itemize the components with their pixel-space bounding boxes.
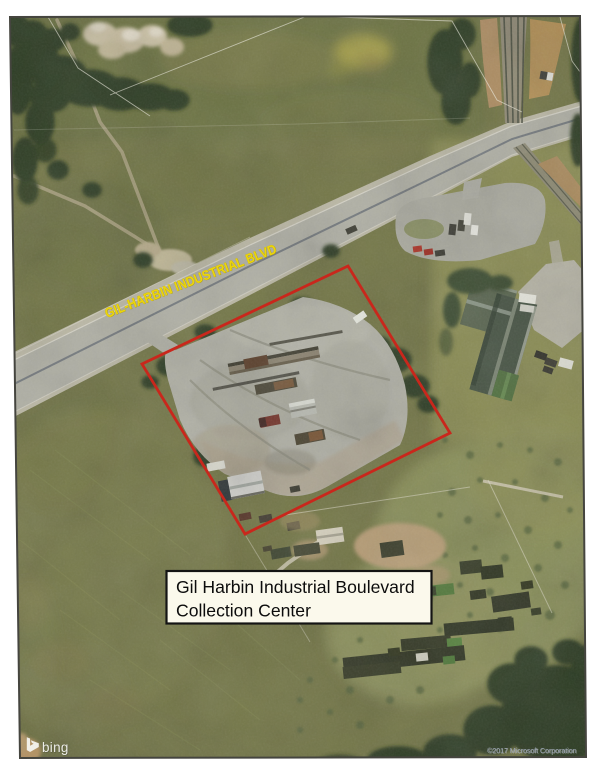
svg-text:Collection Center: Collection Center bbox=[176, 601, 311, 621]
svg-text:bing: bing bbox=[42, 740, 69, 755]
svg-text:Gil Harbin Industrial Boulevar: Gil Harbin Industrial Boulevard bbox=[176, 577, 415, 597]
svg-text:©2017 Microsoft Corporation: ©2017 Microsoft Corporation bbox=[487, 746, 576, 755]
